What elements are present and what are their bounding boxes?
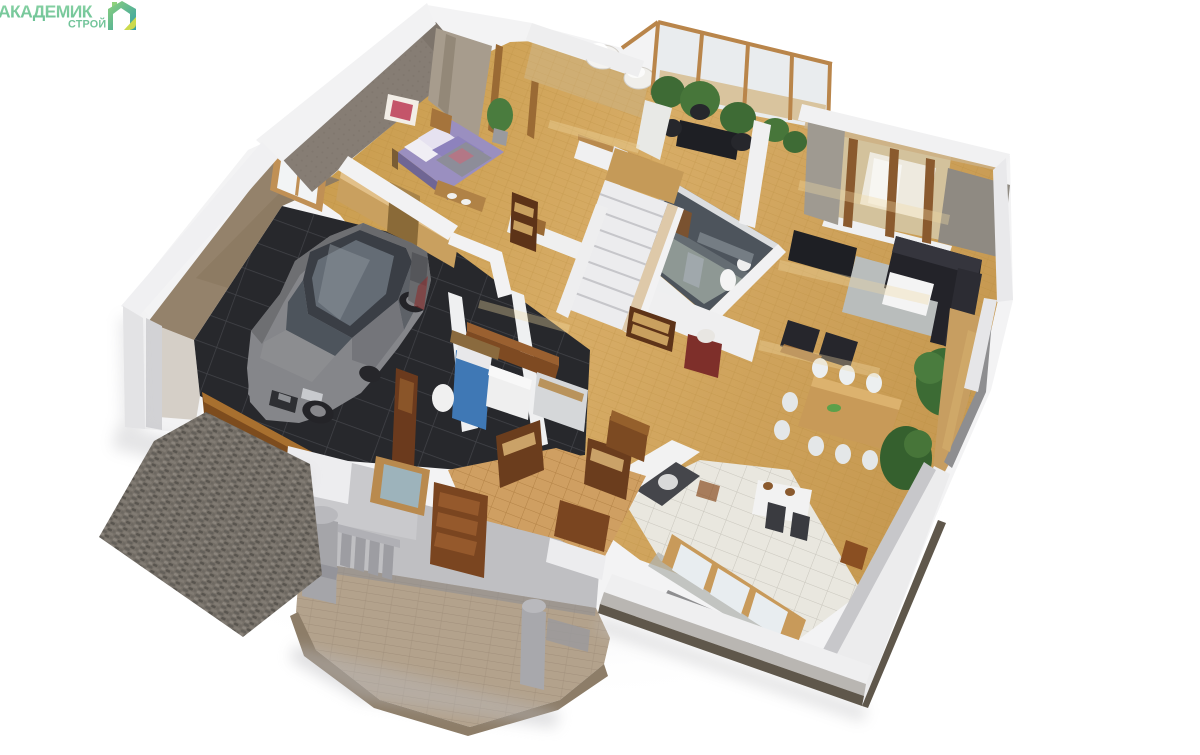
svg-text:СТРОЙ: СТРОЙ — [68, 18, 106, 31]
